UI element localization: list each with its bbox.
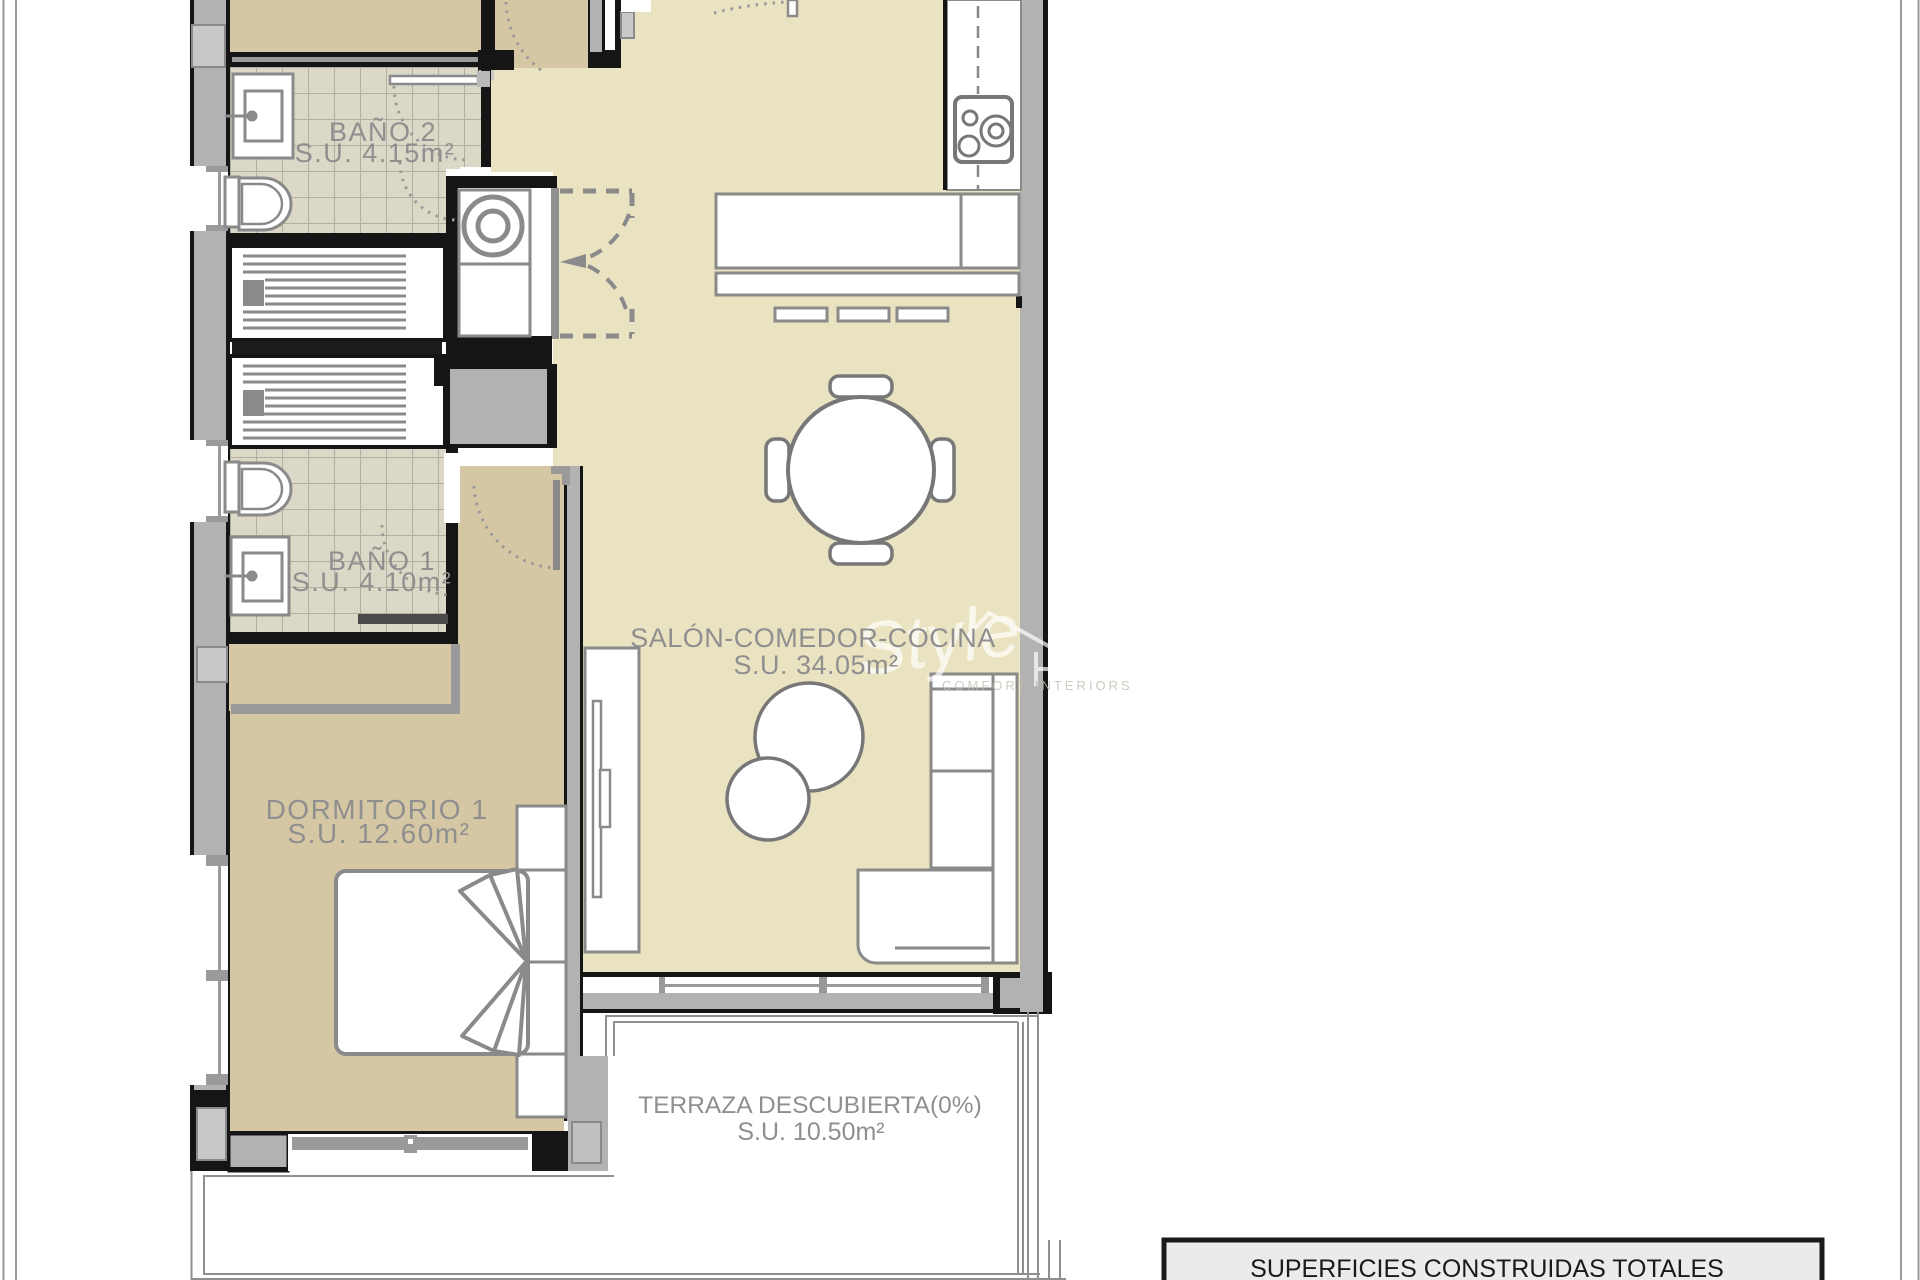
svg-text:S.U. 4.10m²: S.U. 4.10m² bbox=[292, 567, 453, 597]
svg-text:S.U. 12.60m²: S.U. 12.60m² bbox=[288, 818, 471, 849]
svg-text:SUPERFICIES CONSTRUIDAS TOTALE: SUPERFICIES CONSTRUIDAS TOTALES bbox=[1250, 1255, 1724, 1280]
svg-text:S.U. 4.15m²: S.U. 4.15m² bbox=[295, 138, 456, 168]
svg-text:S.U. 10.50m²: S.U. 10.50m² bbox=[737, 1118, 884, 1146]
svg-text:TERRAZA DESCUBIERTA(0%): TERRAZA DESCUBIERTA(0%) bbox=[638, 1092, 982, 1119]
svg-text:COMFORT INTERIORS: COMFORT INTERIORS bbox=[942, 678, 1133, 693]
svg-text:S.U. 34.05m²: S.U. 34.05m² bbox=[733, 650, 898, 680]
svg-text:SALÓN-COMEDOR-COCINA: SALÓN-COMEDOR-COCINA bbox=[630, 622, 996, 653]
